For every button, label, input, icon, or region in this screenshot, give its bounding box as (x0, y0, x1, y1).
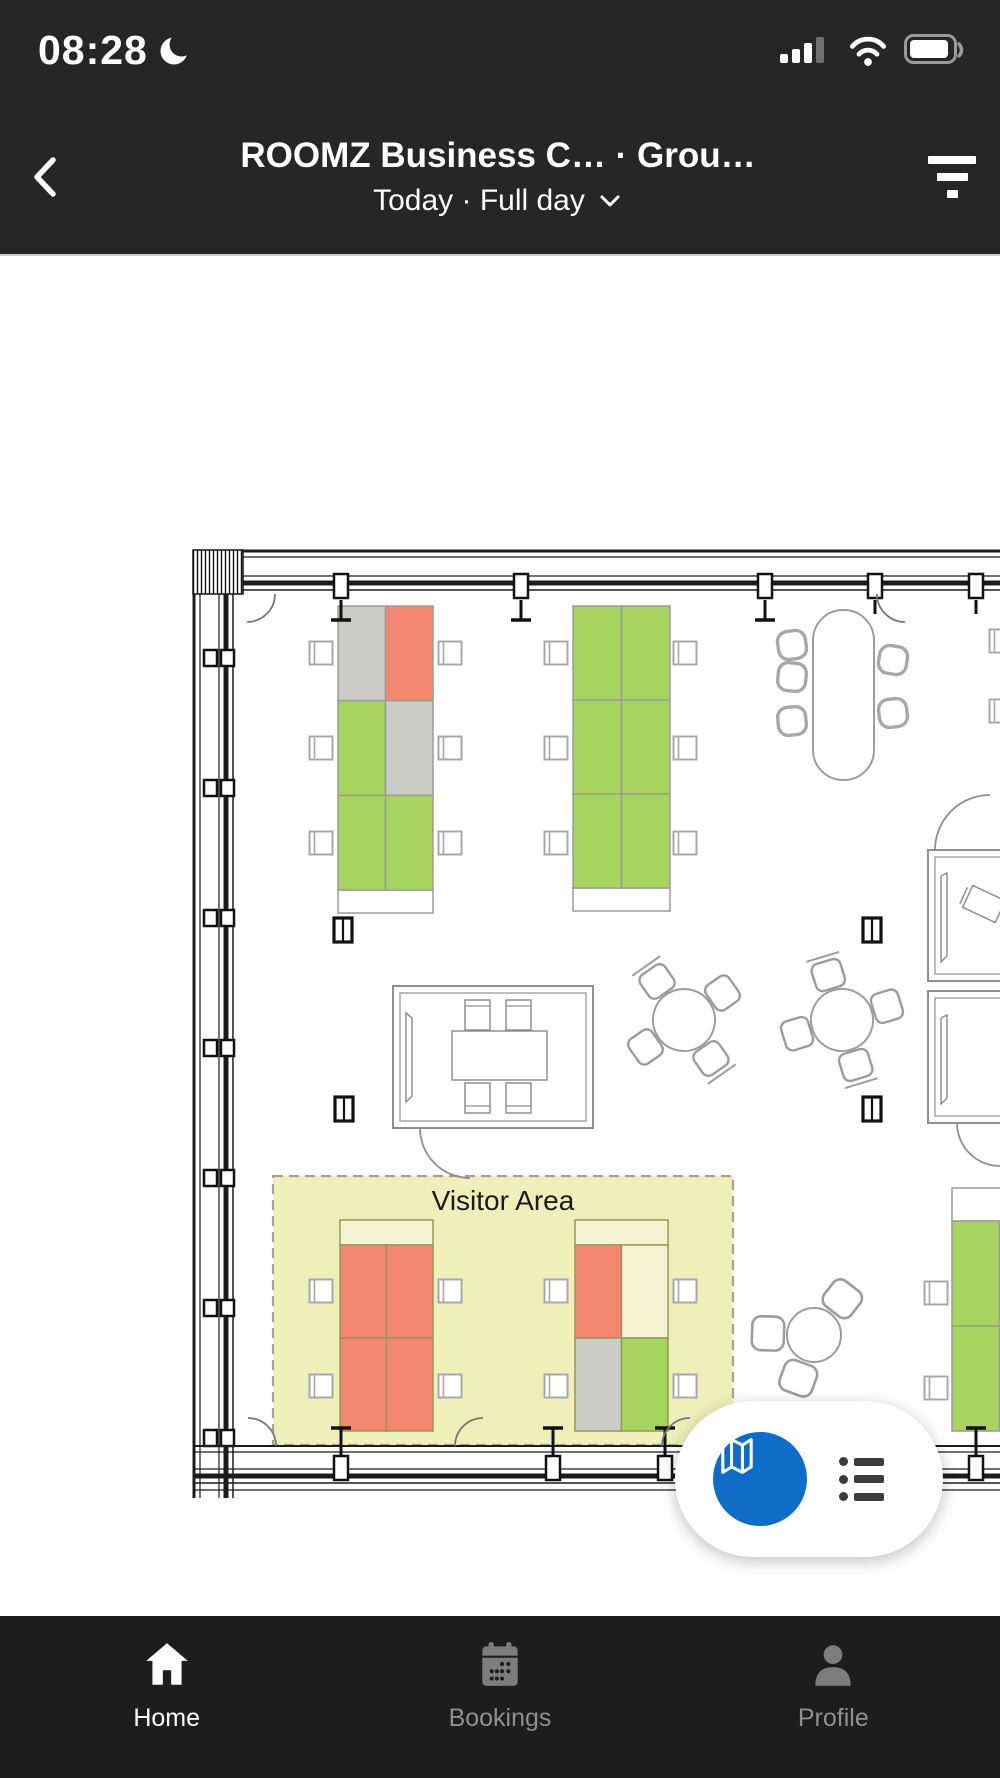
nav-item-profile[interactable]: Profile (667, 1616, 1000, 1778)
round-table-3 (751, 1276, 865, 1399)
page-title: ROOMZ Business C… · Grou… (240, 136, 755, 176)
list-icon (839, 1457, 899, 1466)
visitor-area-label: Visitor Area (432, 1185, 575, 1216)
list-view-button[interactable] (839, 1457, 899, 1501)
view-toggle-pill (675, 1401, 943, 1557)
desk-cell-free[interactable] (622, 1338, 669, 1431)
desk-bank-cap (573, 888, 670, 911)
chevron-left-icon (26, 154, 66, 200)
desk-cell-blocked[interactable] (386, 701, 434, 796)
desk-cell-booked[interactable] (387, 1245, 434, 1338)
wall-corner-hatch (193, 550, 243, 594)
date-range-selector[interactable]: Today · Full day (373, 184, 623, 218)
desk-cell-none[interactable] (622, 1245, 669, 1338)
desk-cell-free[interactable] (338, 701, 386, 796)
left-wall (194, 550, 233, 1498)
round-table-2 (763, 941, 922, 1100)
home-icon (141, 1638, 193, 1690)
phone-booths (928, 795, 1000, 1166)
meeting-room (393, 986, 593, 1178)
desk-cell-free[interactable] (338, 795, 386, 890)
desk-cell-booked[interactable] (575, 1245, 622, 1338)
desk-cell-free[interactable] (952, 1326, 1000, 1431)
door-arc-top-left (247, 594, 275, 622)
nav-item-home[interactable]: Home (0, 1616, 333, 1778)
signal-icon (778, 33, 832, 67)
clock: 08:28 (38, 27, 148, 74)
desk-cell-free[interactable] (622, 794, 671, 888)
desk-cell-free[interactable] (573, 794, 622, 888)
desk-cell-booked[interactable] (386, 606, 434, 701)
nav-label-bookings: Bookings (449, 1704, 552, 1733)
filter-icon (928, 156, 976, 164)
bottom-navigation: Home Bookings Profile (0, 1616, 1000, 1778)
header-title-block: ROOMZ Business C… · Grou… Today · Full d… (92, 136, 904, 218)
status-icons (778, 32, 966, 68)
moon-icon (156, 31, 194, 74)
desk-cell-free[interactable] (386, 795, 434, 890)
back-button[interactable] (0, 154, 92, 200)
desk-bank-cap (340, 1220, 433, 1245)
floor-plan-view[interactable]: Visitor Area (0, 256, 1000, 1616)
desk-cell-blocked[interactable] (575, 1338, 622, 1431)
desk-bank-cap (338, 890, 433, 913)
desk-cell-free[interactable] (952, 1221, 1000, 1326)
map-view-button[interactable] (713, 1432, 807, 1526)
nav-item-bookings[interactable]: Bookings (333, 1616, 666, 1778)
desk-cell-free[interactable] (622, 606, 671, 700)
nav-label-home: Home (133, 1704, 200, 1733)
wifi-icon (844, 32, 892, 68)
nav-label-profile: Profile (798, 1704, 869, 1733)
door-arc-bottom-1 (248, 1418, 276, 1446)
desk-cell-free[interactable] (622, 700, 671, 794)
booth-door-arc-bottom (957, 1123, 1000, 1166)
battery-icon (904, 34, 966, 66)
oval-table-group (776, 610, 909, 780)
date-range-label: Today · Full day (373, 184, 585, 218)
desk-cell-booked[interactable] (340, 1338, 387, 1431)
desk-bank-cap (952, 1188, 1000, 1221)
meeting-room-door-arc (420, 1128, 470, 1178)
desk-cell-booked[interactable] (387, 1338, 434, 1431)
desk-bank-cap (575, 1220, 668, 1245)
chevron-down-icon (597, 191, 623, 211)
calendar-icon (474, 1638, 526, 1690)
desk-cell-free[interactable] (573, 700, 622, 794)
status-bar: 08:28 (0, 0, 1000, 100)
app-header: ROOMZ Business C… · Grou… Today · Full d… (0, 100, 1000, 256)
desk-cell-free[interactable] (573, 606, 622, 700)
filter-button[interactable] (904, 156, 1000, 198)
person-icon (807, 1638, 859, 1690)
round-table-1 (616, 952, 752, 1088)
desk-cell-booked[interactable] (340, 1245, 387, 1338)
map-icon (713, 1432, 761, 1480)
booth-door-arc-top (935, 795, 990, 850)
